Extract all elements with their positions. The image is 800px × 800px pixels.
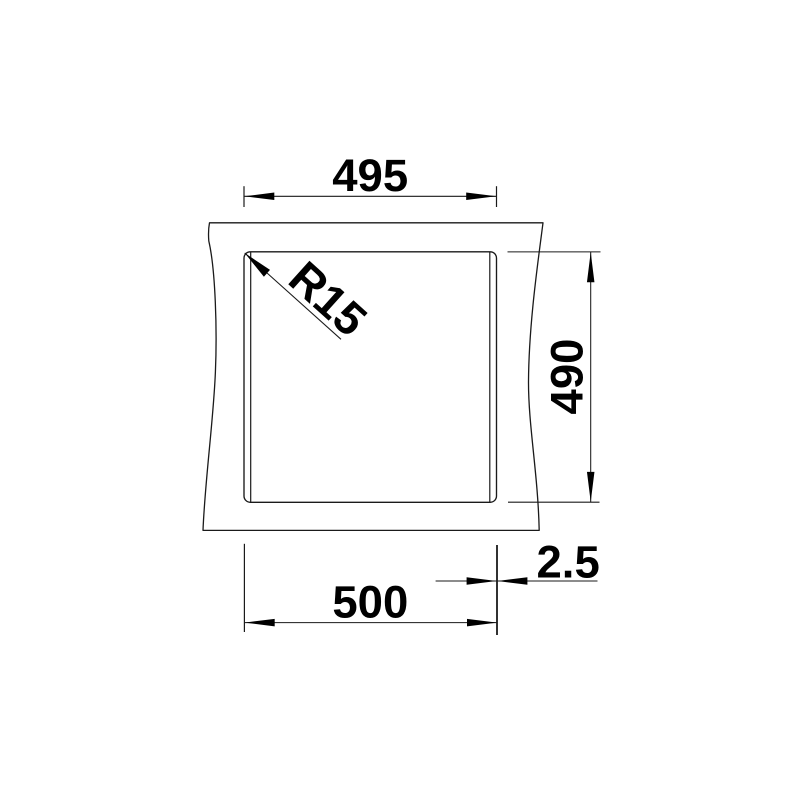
- svg-text:500: 500: [332, 577, 408, 628]
- svg-text:490: 490: [542, 339, 593, 415]
- svg-text:495: 495: [332, 150, 408, 201]
- svg-text:2.5: 2.5: [537, 537, 600, 588]
